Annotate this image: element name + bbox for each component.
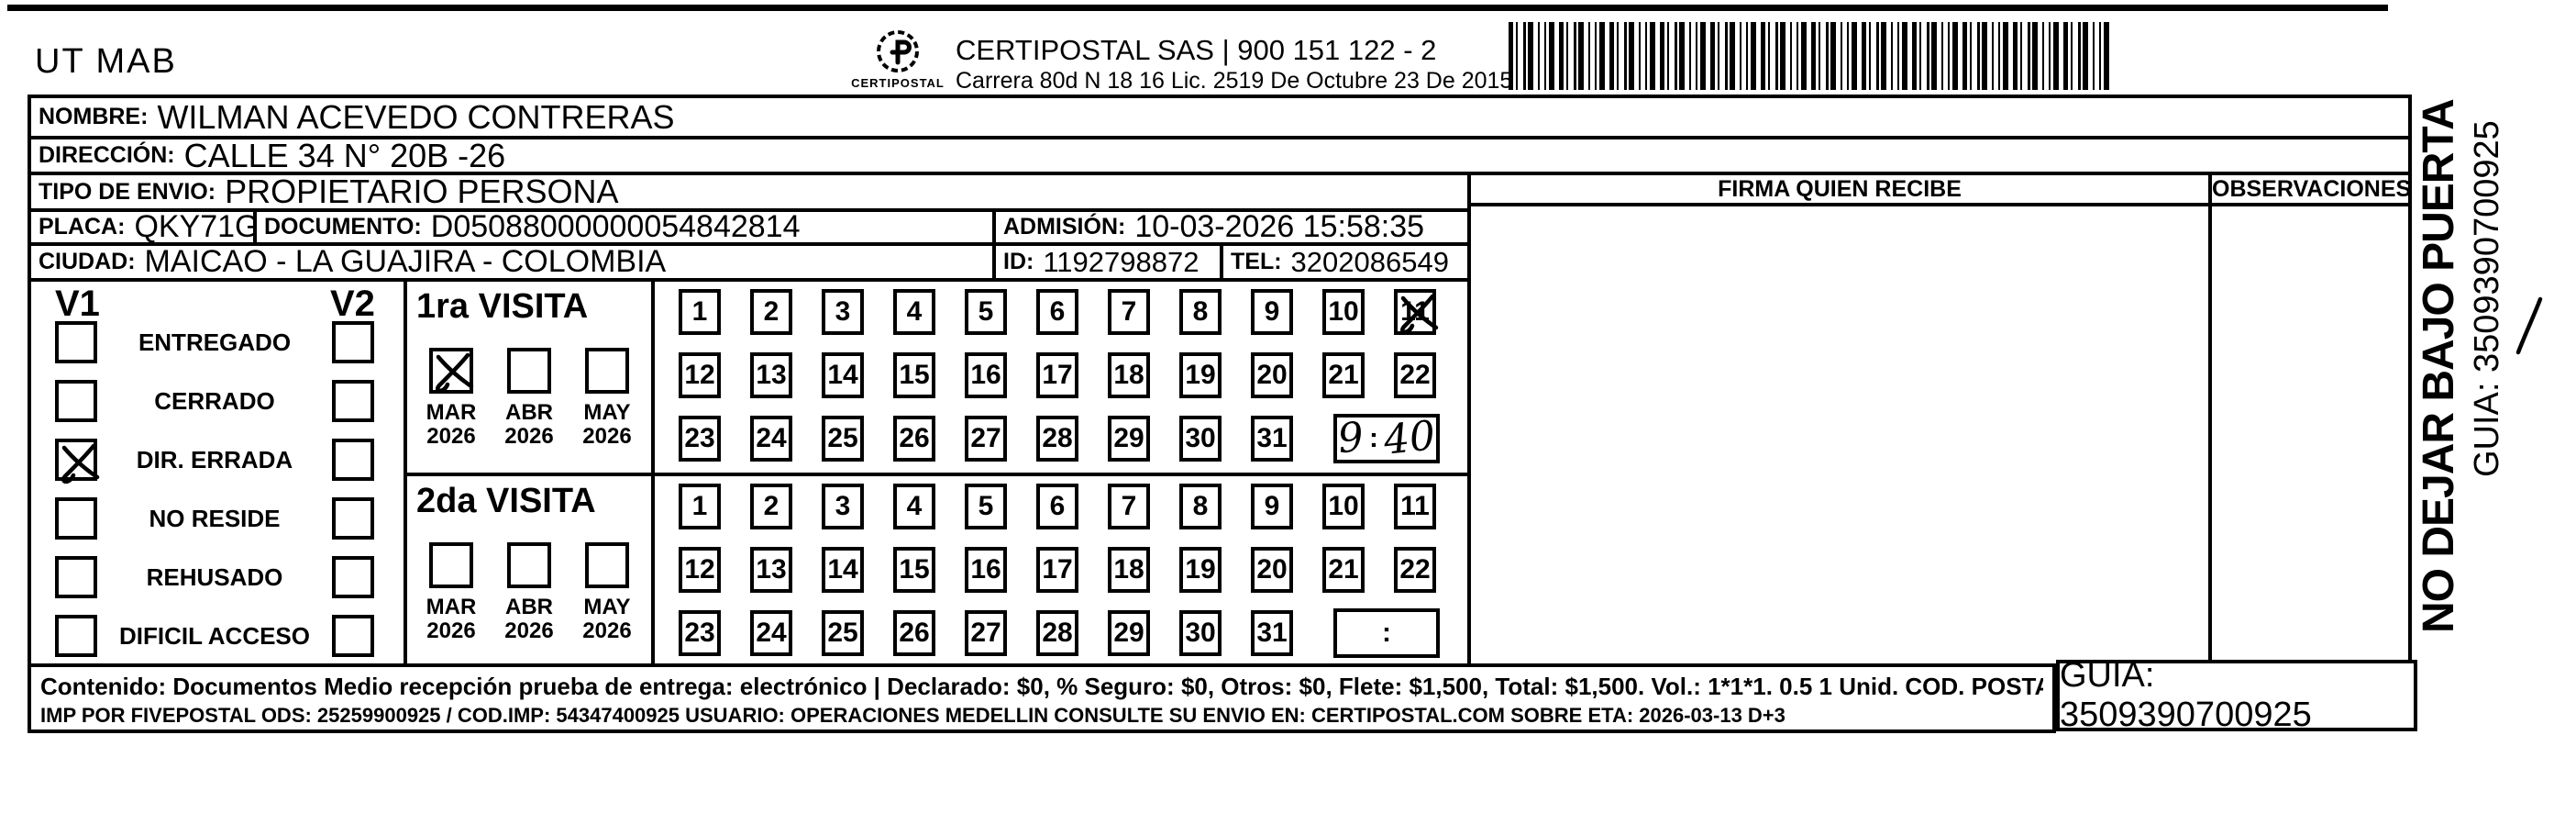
ciudad-value: MAICAO - LA GUAJIRA - COLOMBIA — [145, 244, 667, 280]
day-cell: 2 — [750, 289, 792, 335]
v2-checkbox — [332, 556, 374, 598]
day-row: 232425262728293031 — [679, 610, 1293, 656]
day-cell: 4 — [893, 289, 935, 335]
visit2-months: MAR2026ABR2026MAY2026 — [407, 542, 651, 643]
content-line: Contenido: Documentos Medio recepción pr… — [40, 672, 2043, 702]
day-cell: 30 — [1179, 416, 1222, 462]
tel-cell: TEL: 3202086549 — [1220, 242, 1471, 282]
day-cell: 25 — [822, 416, 864, 462]
month-item: MAY2026 — [574, 348, 640, 449]
day-cell: 31 — [1251, 610, 1293, 656]
day-cell: 14 — [822, 547, 864, 593]
content-declaration-box: Contenido: Documentos Medio recepción pr… — [28, 663, 2056, 733]
month-checkbox — [507, 542, 551, 588]
direccion-label: DIRECCIÓN: — [39, 142, 175, 169]
status-row: REHUSADO — [31, 556, 404, 598]
shipping-label-scan: UT MAB NIT 901783814 - 6049499 DIAGONAL … — [0, 0, 2576, 813]
day-cell: 22 — [1394, 547, 1436, 593]
admision-value: 10-03-2026 15:58:35 — [1134, 209, 1424, 245]
tel-label: TEL: — [1231, 249, 1282, 275]
company-license-line: Carrera 80d N 18 16 Lic. 2519 De Octubre… — [956, 67, 1512, 95]
status-row: ENTREGADO — [31, 321, 404, 363]
month-checkbox — [585, 542, 629, 588]
day-cell: 12 — [679, 352, 721, 398]
documento-value: D05088000000054842814 — [431, 209, 801, 245]
day-cell: 8 — [1179, 289, 1222, 335]
v2-checkbox — [332, 497, 374, 540]
handwritten-minutes: 40 — [1382, 416, 1437, 462]
day-cell: 1 — [679, 289, 721, 335]
day-cell: 15 — [893, 352, 935, 398]
day-cell: 13 — [750, 547, 792, 593]
month-label: ABR2026 — [504, 596, 553, 643]
month-checkbox — [507, 348, 551, 394]
v1-checkbox — [55, 380, 97, 422]
visit1-day-grid: 1234567891011121314151617181920212223242… — [651, 278, 1471, 476]
ciudad-label: CIUDAD: — [39, 249, 136, 275]
day-cell: 23 — [679, 416, 721, 462]
day-cell: 2 — [750, 484, 792, 529]
handwritten-x-mark — [1390, 285, 1447, 342]
day-cell: 28 — [1036, 416, 1078, 462]
status-label: CERRADO — [105, 380, 325, 422]
day-cell: 21 — [1322, 547, 1365, 593]
handwritten-x-mark — [51, 435, 108, 492]
placa-value: QKY71G — [134, 209, 257, 245]
day-cell: 11 — [1394, 289, 1436, 335]
admision-cell: ADMISIÓN: 10-03-2026 15:58:35 — [992, 208, 1471, 246]
imp-line: IMP POR FIVEPOSTAL ODS: 25259900925 / CO… — [40, 702, 2043, 729]
day-row: 1234567891011 — [679, 289, 1436, 335]
status-box: V1 V2 ENTREGADOCERRADODIR. ERRADANO RESI… — [28, 278, 407, 667]
month-checkbox — [429, 348, 473, 394]
v2-header: V2 — [330, 284, 375, 325]
day-cell: 9 — [1251, 484, 1293, 529]
day-cell: 23 — [679, 610, 721, 656]
day-cell: 4 — [893, 484, 935, 529]
day-cell: 24 — [750, 610, 792, 656]
day-cell: 18 — [1108, 352, 1150, 398]
observaciones-header: OBSERVACIONES — [2212, 175, 2408, 206]
day-cell: 11 — [1394, 484, 1436, 529]
month-item: MAR2026 — [418, 542, 484, 643]
status-row: DIR. ERRADA — [31, 439, 404, 481]
day-cell: 3 — [822, 484, 864, 529]
month-checkbox — [585, 348, 629, 394]
tipo-envio-row: TIPO DE ENVIO: PROPIETARIO PERSONA — [28, 172, 1471, 212]
v1-checkbox — [55, 615, 97, 657]
status-label: REHUSADO — [105, 556, 325, 598]
day-cell: 10 — [1322, 484, 1365, 529]
day-cell: 5 — [965, 289, 1007, 335]
guia-number-box: GUIA: 3509390700925 — [2056, 660, 2417, 731]
side-warning-text: NO DEJAR BAJO PUERTA — [2414, 119, 2464, 633]
direccion-row: DIRECCIÓN: CALLE 34 N° 20B -26 — [28, 136, 2412, 175]
tipo-envio-value: PROPIETARIO PERSONA — [225, 173, 618, 211]
certipostal-logo: CERTIPOSTAL — [847, 28, 948, 98]
visit2-section: 2da VISITA MAR2026ABR2026MAY2026 — [404, 473, 655, 667]
day-cell: 19 — [1179, 352, 1222, 398]
direccion-value: CALLE 34 N° 20B -26 — [184, 137, 506, 175]
time-colon: : — [1369, 423, 1378, 454]
side-guia-text: GUIA: 3509390700925 — [2468, 119, 2507, 477]
day-cell: 30 — [1179, 610, 1222, 656]
status-row: NO RESIDE — [31, 497, 404, 540]
day-cell: 8 — [1179, 484, 1222, 529]
handwritten-hour: 9 — [1336, 418, 1365, 461]
barcode — [1509, 22, 2112, 90]
status-row: CERRADO — [31, 380, 404, 422]
day-cell: 7 — [1108, 484, 1150, 529]
day-cell: 26 — [893, 610, 935, 656]
day-cell: 3 — [822, 289, 864, 335]
day-cell: 17 — [1036, 547, 1078, 593]
sender-code: UT MAB — [35, 42, 177, 82]
day-cell: 6 — [1036, 289, 1078, 335]
day-cell: 20 — [1251, 352, 1293, 398]
side-note: NO DEJAR BAJO PUERTA GUIA: 3509390700925 — [2414, 119, 2507, 633]
firma-column: FIRMA QUIEN RECIBE — [1467, 172, 2212, 667]
nombre-label: NOMBRE: — [39, 104, 148, 130]
day-cell: 15 — [893, 547, 935, 593]
status-row: DIFICIL ACCESO — [31, 615, 404, 657]
day-cell: 5 — [965, 484, 1007, 529]
month-item: MAY2026 — [574, 542, 640, 643]
visit1-section: 1ra VISITA MAR2026ABR2026MAY2026 — [404, 278, 655, 476]
day-cell: 20 — [1251, 547, 1293, 593]
nombre-row: NOMBRE: WILMAN ACEVEDO CONTRERAS — [28, 95, 2412, 139]
visit2-day-grid: 1234567891011121314151617181920212223242… — [651, 473, 1471, 667]
observaciones-column: OBSERVACIONES — [2208, 172, 2412, 667]
tipo-envio-label: TIPO DE ENVIO: — [39, 179, 216, 206]
day-cell: 28 — [1036, 610, 1078, 656]
day-row: 1213141516171819202122 — [679, 547, 1436, 593]
visit1-months: MAR2026ABR2026MAY2026 — [407, 348, 651, 449]
id-value: 1192798872 — [1043, 246, 1199, 279]
day-cell: 7 — [1108, 289, 1150, 335]
top-rule — [7, 5, 2388, 11]
day-cell: 29 — [1108, 416, 1150, 462]
day-cell: 27 — [965, 610, 1007, 656]
day-cell: 9 — [1251, 289, 1293, 335]
id-cell: ID: 1192798872 — [992, 242, 1223, 282]
month-label: MAR2026 — [426, 596, 477, 643]
status-label: ENTREGADO — [105, 321, 325, 363]
v1-checkbox — [55, 497, 97, 540]
day-cell: 17 — [1036, 352, 1078, 398]
v2-checkbox — [332, 615, 374, 657]
day-cell: 16 — [965, 352, 1007, 398]
day-cell: 14 — [822, 352, 864, 398]
placa-label: PLACA: — [39, 214, 125, 240]
day-cell: 22 — [1394, 352, 1436, 398]
visit1-title: 1ra VISITA — [416, 287, 588, 327]
placa-cell: PLACA: QKY71G — [28, 208, 257, 246]
month-label: MAY2026 — [582, 596, 631, 643]
month-label: MAY2026 — [582, 401, 631, 449]
day-cell: 16 — [965, 547, 1007, 593]
day-cell: 1 — [679, 484, 721, 529]
day-row: 232425262728293031 — [679, 416, 1293, 462]
logo-caption: CERTIPOSTAL — [847, 76, 948, 90]
logo-stamp-icon — [874, 28, 922, 75]
month-item: MAR2026 — [418, 348, 484, 449]
day-cell: 26 — [893, 416, 935, 462]
month-item: ABR2026 — [496, 542, 562, 643]
visit2-time-box: : — [1333, 608, 1440, 658]
v1-header: V1 — [55, 284, 100, 325]
day-cell: 10 — [1322, 289, 1365, 335]
v2-checkbox — [332, 380, 374, 422]
day-cell: 21 — [1322, 352, 1365, 398]
month-checkbox — [429, 542, 473, 588]
day-cell: 27 — [965, 416, 1007, 462]
ciudad-cell: CIUDAD: MAICAO - LA GUAJIRA - COLOMBIA — [28, 242, 996, 282]
visit1-time-box: 9:40 — [1333, 414, 1440, 463]
month-label: ABR2026 — [504, 401, 553, 449]
admision-label: ADMISIÓN: — [1003, 214, 1125, 240]
firma-header: FIRMA QUIEN RECIBE — [1471, 175, 2208, 206]
day-row: 1213141516171819202122 — [679, 352, 1436, 398]
handwritten-stray-mark — [2511, 294, 2548, 358]
month-label: MAR2026 — [426, 401, 477, 449]
nombre-value: WILMAN ACEVEDO CONTRERAS — [157, 98, 674, 137]
tel-value: 3202086549 — [1291, 246, 1449, 279]
month-item: ABR2026 — [496, 348, 562, 449]
day-cell: 31 — [1251, 416, 1293, 462]
v1-checkbox — [55, 439, 97, 481]
status-label: DIFICIL ACCESO — [105, 615, 325, 657]
day-cell: 25 — [822, 610, 864, 656]
v2-checkbox — [332, 439, 374, 481]
v1-checkbox — [55, 321, 97, 363]
id-label: ID: — [1003, 249, 1034, 275]
company-block: CERTIPOSTAL SAS | 900 151 122 - 2 Carrer… — [956, 33, 1512, 95]
day-cell: 6 — [1036, 484, 1078, 529]
day-cell: 12 — [679, 547, 721, 593]
day-row: 1234567891011 — [679, 484, 1436, 529]
handwritten-x-mark — [426, 344, 482, 401]
documento-cell: DOCUMENTO: D05088000000054842814 — [253, 208, 996, 246]
status-label: DIR. ERRADA — [105, 439, 325, 481]
documento-label: DOCUMENTO: — [264, 214, 422, 240]
day-cell: 24 — [750, 416, 792, 462]
day-cell: 18 — [1108, 547, 1150, 593]
v1-checkbox — [55, 556, 97, 598]
company-name-line: CERTIPOSTAL SAS | 900 151 122 - 2 — [956, 33, 1512, 67]
day-cell: 29 — [1108, 610, 1150, 656]
v2-checkbox — [332, 321, 374, 363]
day-cell: 13 — [750, 352, 792, 398]
visit2-title: 2da VISITA — [416, 482, 596, 521]
day-cell: 19 — [1179, 547, 1222, 593]
status-label: NO RESIDE — [105, 497, 325, 540]
